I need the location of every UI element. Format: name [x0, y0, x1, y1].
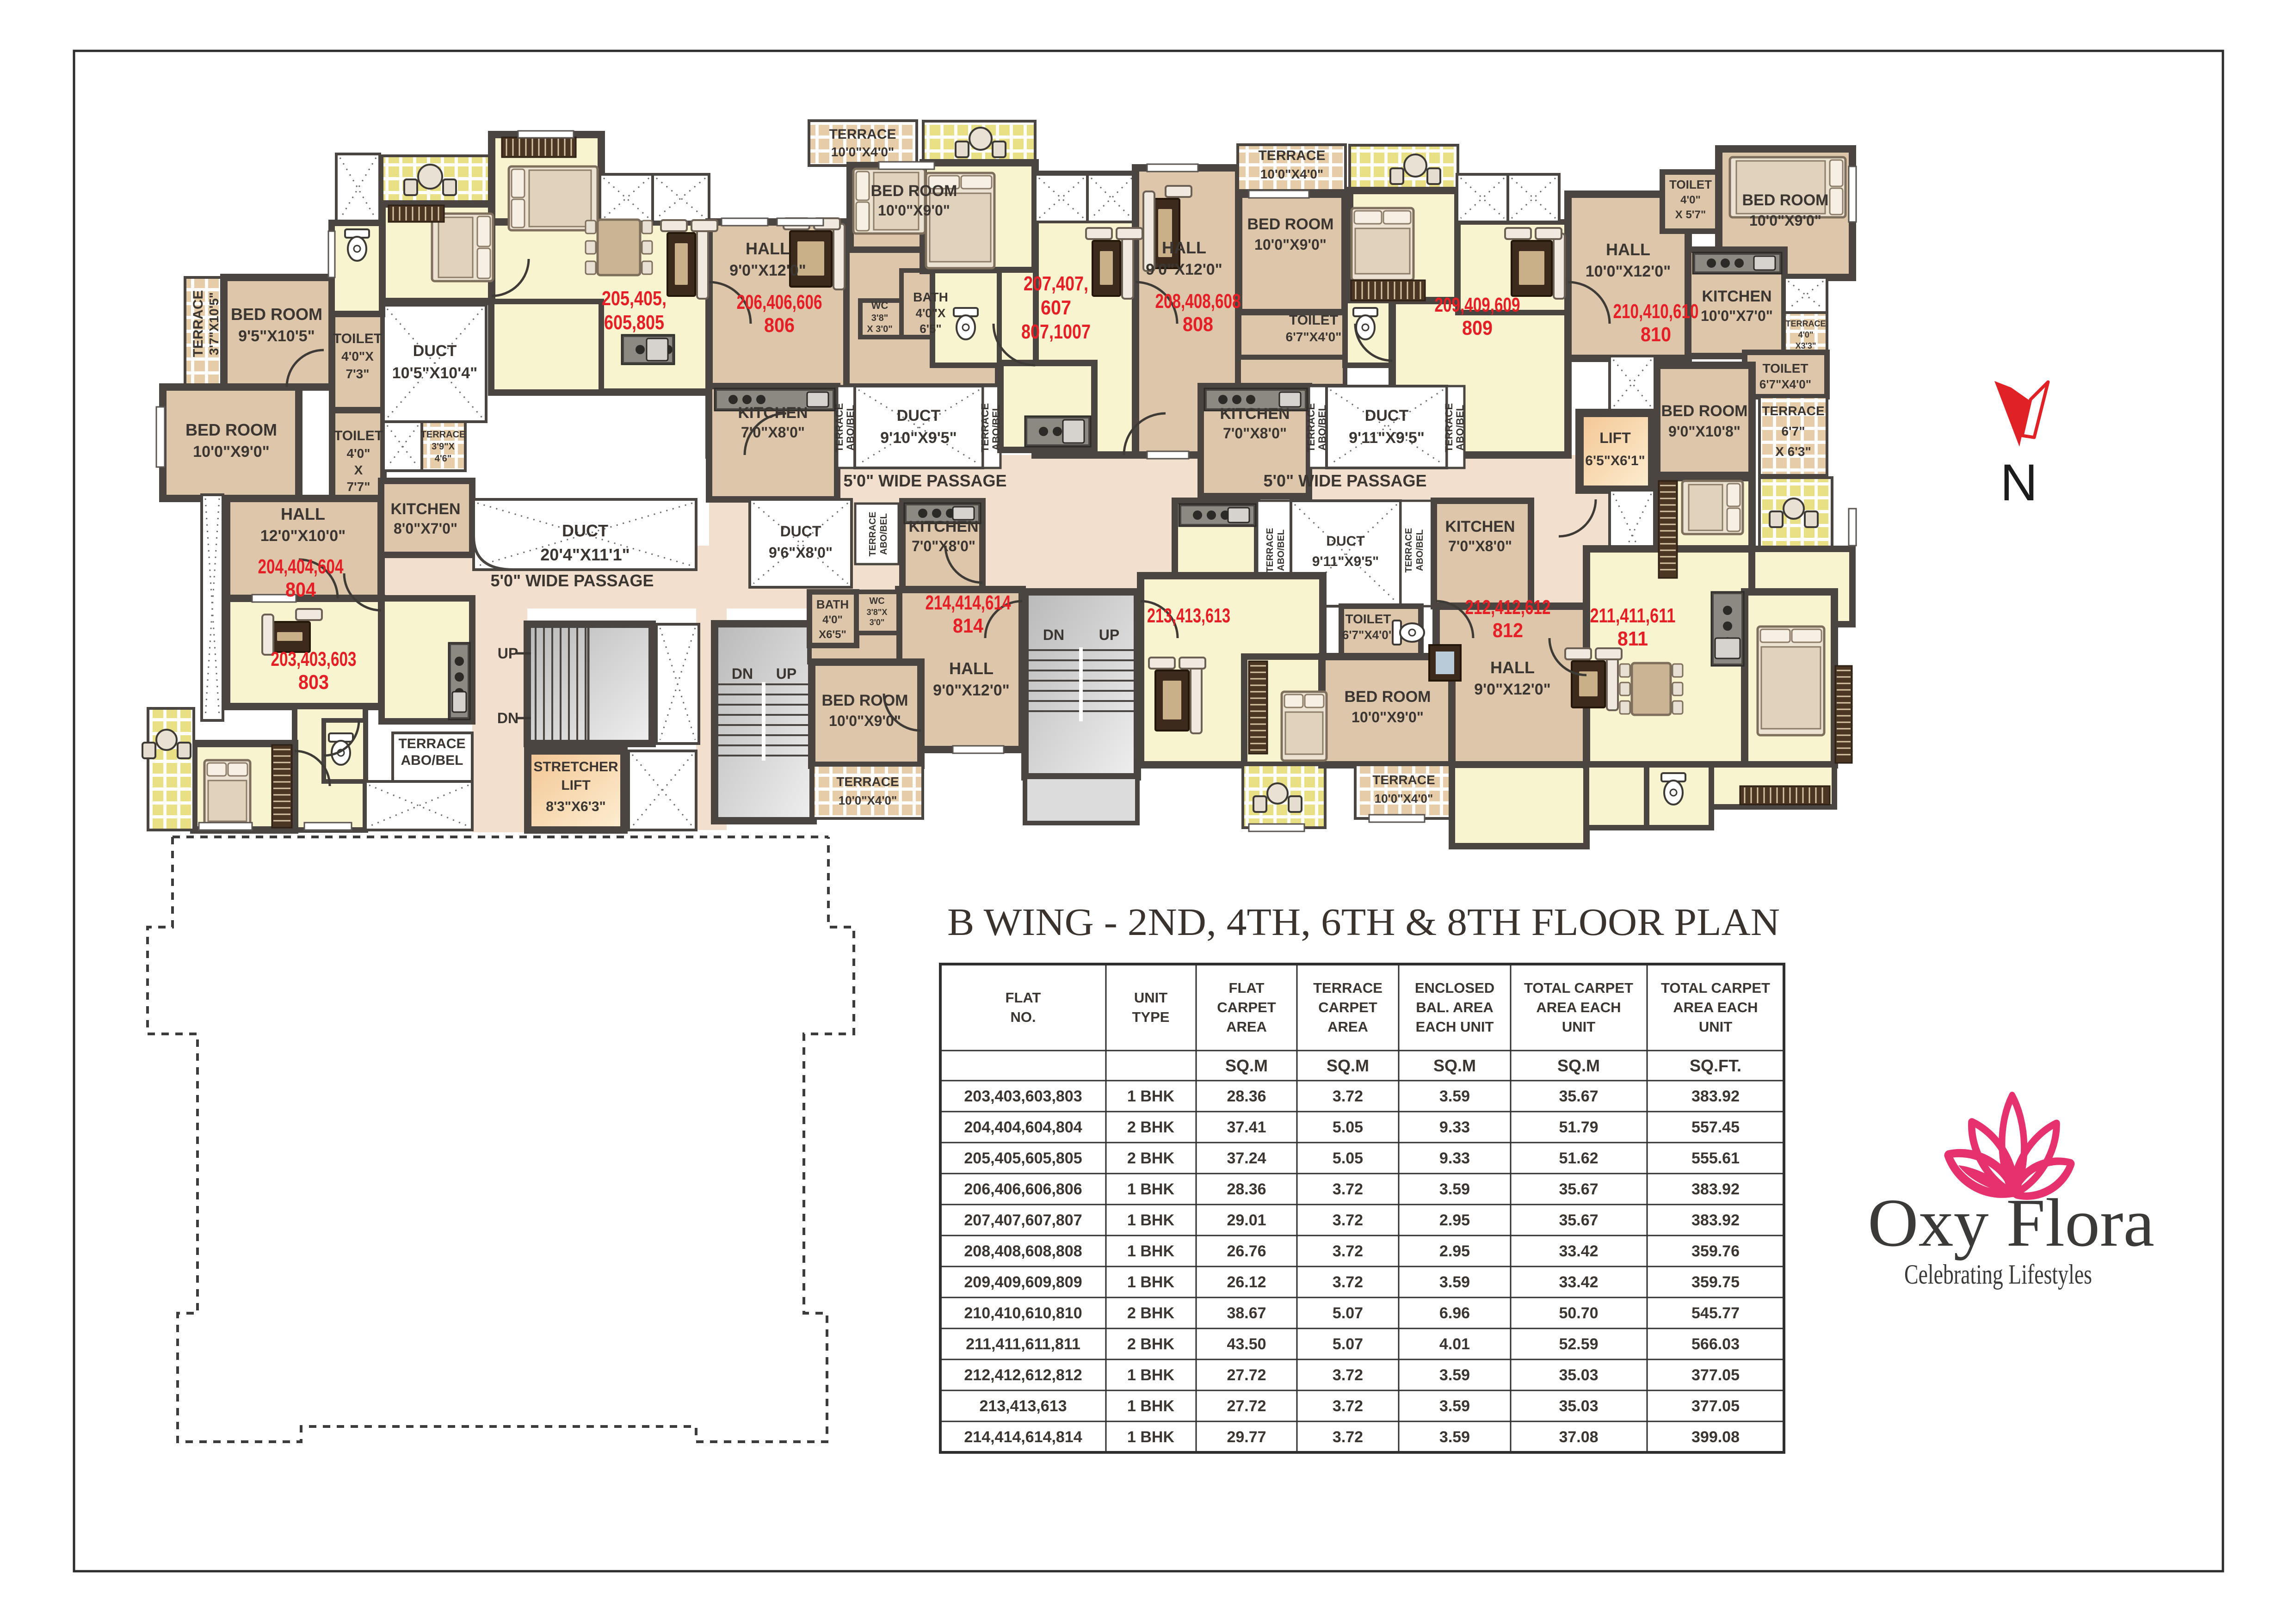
svg-text:1 BHK: 1 BHK: [1127, 1397, 1174, 1415]
svg-text:803: 803: [298, 671, 329, 694]
svg-text:557.45: 557.45: [1691, 1119, 1740, 1136]
svg-text:204,404,604: 204,404,604: [258, 555, 344, 578]
svg-text:TERRACE: TERRACE: [868, 512, 878, 557]
svg-text:213,413,613: 213,413,613: [979, 1397, 1067, 1415]
svg-text:29.01: 29.01: [1227, 1211, 1266, 1229]
svg-text:377.05: 377.05: [1691, 1397, 1740, 1415]
svg-text:3.72: 3.72: [1333, 1242, 1363, 1260]
svg-text:35.03: 35.03: [1559, 1397, 1598, 1415]
svg-text:9'11"X9'5": 9'11"X9'5": [1349, 429, 1425, 447]
svg-text:2.95: 2.95: [1439, 1211, 1470, 1229]
svg-text:KITCHEN: KITCHEN: [1220, 405, 1290, 423]
svg-text:ABO/BEL: ABO/BEL: [990, 405, 1002, 451]
svg-text:TYPE: TYPE: [1132, 1009, 1170, 1025]
svg-text:TOILET: TOILET: [1762, 361, 1808, 375]
svg-text:7'3": 7'3": [346, 367, 369, 381]
svg-text:4'6": 4'6": [435, 454, 451, 464]
svg-text:UP: UP: [498, 645, 518, 662]
svg-text:3.59: 3.59: [1439, 1180, 1470, 1198]
svg-text:5'0" WIDE PASSAGE: 5'0" WIDE PASSAGE: [1263, 471, 1426, 490]
svg-text:10'0"X9'0": 10'0"X9'0": [1254, 236, 1327, 253]
svg-text:6'5": 6'5": [920, 322, 941, 336]
svg-text:BATH: BATH: [913, 290, 948, 304]
svg-text:808: 808: [1183, 313, 1213, 336]
svg-text:4'0"X: 4'0"X: [916, 306, 946, 320]
svg-text:399.08: 399.08: [1691, 1428, 1740, 1446]
svg-text:7'0"X8'0": 7'0"X8'0": [1223, 425, 1287, 442]
svg-text:566.03: 566.03: [1691, 1335, 1740, 1353]
svg-text:810: 810: [1641, 323, 1671, 346]
svg-text:9'0"X12'0": 9'0"X12'0": [1146, 261, 1222, 278]
svg-text:9.33: 9.33: [1439, 1119, 1470, 1136]
svg-text:ABO/BEL: ABO/BEL: [879, 513, 889, 555]
svg-text:AREA: AREA: [1327, 1019, 1368, 1035]
svg-text:50.70: 50.70: [1559, 1304, 1598, 1322]
svg-text:DUCT: DUCT: [780, 523, 821, 540]
svg-text:BATH: BATH: [816, 597, 849, 611]
svg-text:9'6"X8'0": 9'6"X8'0": [769, 544, 833, 561]
svg-text:AREA EACH: AREA EACH: [1673, 999, 1758, 1015]
svg-text:812: 812: [1493, 619, 1523, 642]
svg-text:10'0"X4'0": 10'0"X4'0": [1375, 792, 1433, 805]
svg-text:212,412,612: 212,412,612: [1465, 596, 1551, 619]
svg-text:X 3'0": X 3'0": [867, 324, 892, 334]
svg-text:SQ.M: SQ.M: [1557, 1056, 1600, 1075]
svg-text:TERRACE: TERRACE: [421, 430, 466, 440]
svg-text:ABO/BEL: ABO/BEL: [845, 405, 856, 451]
svg-text:29.77: 29.77: [1227, 1428, 1266, 1446]
svg-text:KITCHEN: KITCHEN: [908, 518, 978, 535]
svg-text:WC: WC: [869, 596, 884, 606]
svg-text:SQ.FT.: SQ.FT.: [1690, 1056, 1741, 1075]
svg-text:10'0"X9'0": 10'0"X9'0": [1749, 212, 1821, 229]
svg-text:TERRACE: TERRACE: [829, 127, 896, 142]
svg-text:359.75: 359.75: [1691, 1273, 1740, 1291]
svg-text:211,411,611,811: 211,411,611,811: [966, 1335, 1080, 1353]
svg-text:TOILET: TOILET: [1669, 178, 1712, 191]
svg-text:X3'3": X3'3": [1796, 341, 1816, 350]
svg-text:6'7"X4'0": 6'7"X4'0": [1286, 330, 1342, 344]
svg-text:UP: UP: [776, 665, 796, 682]
svg-text:ABO/BEL: ABO/BEL: [1316, 405, 1328, 451]
svg-text:3.59: 3.59: [1439, 1088, 1470, 1105]
svg-text:BED ROOM: BED ROOM: [185, 420, 277, 439]
svg-text:9'0"X12'0": 9'0"X12'0": [933, 682, 1010, 699]
svg-text:35.67: 35.67: [1559, 1180, 1598, 1198]
svg-text:807,1007: 807,1007: [1021, 320, 1091, 343]
svg-text:210,410,610: 210,410,610: [1613, 300, 1699, 323]
svg-text:205,405,: 205,405,: [602, 287, 667, 310]
svg-text:TOILET: TOILET: [333, 331, 382, 346]
svg-text:N: N: [2000, 454, 2038, 511]
svg-text:KITCHEN: KITCHEN: [1445, 518, 1515, 535]
svg-text:10'0"X4'0": 10'0"X4'0": [831, 145, 894, 159]
svg-text:37.08: 37.08: [1559, 1428, 1598, 1446]
svg-text:TERRACE: TERRACE: [1785, 319, 1826, 328]
svg-text:209,409,609,809: 209,409,609,809: [964, 1273, 1082, 1291]
svg-text:3.59: 3.59: [1439, 1428, 1470, 1446]
svg-text:20'4"X11'1": 20'4"X11'1": [540, 545, 630, 564]
svg-text:4.01: 4.01: [1439, 1335, 1470, 1353]
svg-text:27.72: 27.72: [1227, 1397, 1266, 1415]
svg-text:KITCHEN: KITCHEN: [738, 404, 808, 422]
svg-text:3.72: 3.72: [1333, 1366, 1363, 1384]
svg-text:2 BHK: 2 BHK: [1127, 1304, 1174, 1322]
svg-text:BED ROOM: BED ROOM: [1742, 191, 1829, 209]
svg-text:5.07: 5.07: [1333, 1335, 1363, 1353]
svg-text:7'7": 7'7": [346, 480, 370, 494]
svg-text:CARPET: CARPET: [1318, 999, 1377, 1015]
svg-text:3.59: 3.59: [1439, 1397, 1470, 1415]
svg-text:UNIT: UNIT: [1134, 990, 1167, 1006]
svg-text:10'0"X9'0": 10'0"X9'0": [829, 713, 901, 729]
svg-text:HALL: HALL: [1606, 240, 1650, 259]
svg-text:BED ROOM: BED ROOM: [822, 692, 908, 709]
svg-text:811: 811: [1617, 627, 1648, 650]
svg-text:3.72: 3.72: [1333, 1180, 1363, 1198]
svg-text:TERRACE: TERRACE: [1305, 403, 1317, 452]
svg-text:TERRACE: TERRACE: [191, 290, 206, 357]
svg-text:8'0"X7'0": 8'0"X7'0": [394, 520, 457, 537]
svg-text:DUCT: DUCT: [413, 342, 457, 360]
svg-text:1 BHK: 1 BHK: [1127, 1366, 1174, 1384]
svg-text:X 5'7": X 5'7": [1675, 209, 1706, 221]
svg-text:51.79: 51.79: [1559, 1119, 1598, 1136]
svg-text:KITCHEN: KITCHEN: [390, 500, 460, 518]
svg-text:4'0": 4'0": [822, 614, 843, 626]
svg-text:ABO/BEL: ABO/BEL: [1454, 405, 1466, 451]
svg-text:10'0"X4'0": 10'0"X4'0": [1260, 167, 1323, 181]
svg-text:208,408,608: 208,408,608: [1155, 290, 1241, 313]
svg-text:212,412,612,812: 212,412,612,812: [964, 1366, 1082, 1384]
svg-text:207,407,: 207,407,: [1024, 272, 1088, 295]
svg-text:TERRACE: TERRACE: [1762, 404, 1824, 418]
svg-text:383.92: 383.92: [1691, 1088, 1740, 1105]
svg-text:3'0": 3'0": [870, 618, 885, 627]
svg-text:3.72: 3.72: [1333, 1428, 1363, 1446]
svg-text:206,406,606: 206,406,606: [737, 291, 822, 314]
svg-text:TOTAL CARPET: TOTAL CARPET: [1661, 980, 1770, 996]
svg-text:AREA EACH: AREA EACH: [1536, 999, 1621, 1015]
svg-text:2 BHK: 2 BHK: [1127, 1119, 1174, 1136]
svg-text:43.50: 43.50: [1227, 1335, 1266, 1353]
svg-text:359.76: 359.76: [1691, 1242, 1740, 1260]
svg-text:5'0" WIDE PASSAGE: 5'0" WIDE PASSAGE: [490, 571, 654, 590]
svg-text:9'0"X12'0": 9'0"X12'0": [1474, 681, 1551, 698]
svg-text:SQ.M: SQ.M: [1327, 1056, 1369, 1075]
svg-text:10'5"X10'4": 10'5"X10'4": [392, 364, 478, 382]
svg-text:1 BHK: 1 BHK: [1127, 1242, 1174, 1260]
svg-text:9'5"X10'5": 9'5"X10'5": [238, 327, 315, 345]
svg-text:213,413,613: 213,413,613: [1147, 604, 1230, 627]
svg-text:AREA: AREA: [1226, 1019, 1267, 1035]
svg-text:4'0": 4'0": [346, 446, 370, 461]
svg-text:555.61: 555.61: [1691, 1150, 1740, 1167]
svg-text:1 BHK: 1 BHK: [1127, 1273, 1174, 1291]
svg-text:3'7"X10'5": 3'7"X10'5": [207, 292, 221, 355]
svg-text:TERRACE: TERRACE: [1265, 528, 1275, 573]
svg-text:377.05: 377.05: [1691, 1366, 1740, 1384]
svg-text:BED ROOM: BED ROOM: [1247, 215, 1334, 233]
svg-text:TERRACE: TERRACE: [979, 403, 991, 452]
svg-text:10'0"X12'0": 10'0"X12'0": [1586, 263, 1671, 280]
svg-text:KITCHEN: KITCHEN: [1702, 288, 1771, 305]
svg-text:DN: DN: [732, 665, 753, 682]
svg-text:WC: WC: [871, 300, 889, 311]
svg-text:3.59: 3.59: [1439, 1366, 1470, 1384]
svg-text:806: 806: [764, 314, 795, 337]
svg-text:28.36: 28.36: [1227, 1088, 1266, 1105]
svg-text:HALL: HALL: [1490, 658, 1535, 677]
svg-text:28.36: 28.36: [1227, 1180, 1266, 1198]
svg-text:38.67: 38.67: [1227, 1304, 1266, 1322]
svg-text:33.42: 33.42: [1559, 1242, 1598, 1260]
svg-text:6'7"X4'0": 6'7"X4'0": [1759, 377, 1811, 391]
svg-text:UNIT: UNIT: [1562, 1019, 1595, 1035]
svg-text:7'0"X8'0": 7'0"X8'0": [741, 424, 805, 441]
svg-text:ABO/BEL: ABO/BEL: [1415, 529, 1425, 571]
svg-text:TERRACE: TERRACE: [1313, 980, 1383, 996]
svg-text:Oxy Flora: Oxy Flora: [1868, 1185, 2154, 1261]
svg-text:37.41: 37.41: [1227, 1119, 1266, 1136]
svg-text:ENCLOSED: ENCLOSED: [1415, 980, 1494, 996]
svg-text:3.72: 3.72: [1333, 1397, 1363, 1415]
svg-text:6'7": 6'7": [1781, 424, 1805, 438]
svg-text:208,408,608,808: 208,408,608,808: [964, 1242, 1082, 1260]
svg-text:3.72: 3.72: [1333, 1088, 1363, 1105]
svg-text:9.33: 9.33: [1439, 1150, 1470, 1167]
svg-text:2 BHK: 2 BHK: [1127, 1335, 1174, 1353]
svg-text:12'0"X10'0": 12'0"X10'0": [260, 527, 346, 545]
svg-text:FLAT: FLAT: [1006, 990, 1041, 1006]
svg-text:607: 607: [1041, 296, 1071, 319]
svg-text:BED ROOM: BED ROOM: [1345, 688, 1431, 706]
svg-text:10'0"X9'0": 10'0"X9'0": [193, 443, 270, 461]
svg-text:HALL: HALL: [949, 659, 994, 678]
svg-text:DUCT: DUCT: [897, 407, 941, 424]
svg-text:804: 804: [285, 578, 316, 601]
svg-text:DUCT: DUCT: [562, 521, 608, 540]
svg-text:3.59: 3.59: [1439, 1273, 1470, 1291]
svg-text:809: 809: [1462, 317, 1493, 339]
svg-text:26.76: 26.76: [1227, 1242, 1266, 1260]
svg-text:1 BHK: 1 BHK: [1127, 1088, 1174, 1105]
svg-text:LIFT: LIFT: [1599, 430, 1631, 446]
svg-text:6'7"X4'0": 6'7"X4'0": [1342, 628, 1394, 642]
svg-text:TOTAL CARPET: TOTAL CARPET: [1524, 980, 1633, 996]
svg-text:TERRACE: TERRACE: [833, 403, 845, 452]
svg-text:204,404,604,804: 204,404,604,804: [964, 1119, 1082, 1136]
svg-text:TERRACE: TERRACE: [1404, 528, 1414, 573]
svg-text:35.67: 35.67: [1559, 1211, 1598, 1229]
svg-text:HALL: HALL: [1162, 238, 1206, 257]
svg-text:TERRACE: TERRACE: [836, 775, 899, 789]
svg-text:FLAT: FLAT: [1229, 980, 1265, 996]
svg-text:3.72: 3.72: [1333, 1273, 1363, 1291]
svg-text:DUCT: DUCT: [1365, 407, 1409, 424]
svg-text:BED ROOM: BED ROOM: [231, 305, 322, 324]
svg-text:3'8": 3'8": [871, 313, 888, 323]
svg-text:206,406,606,806: 206,406,606,806: [964, 1180, 1082, 1198]
svg-text:207,407,607,807: 207,407,607,807: [964, 1211, 1082, 1229]
svg-text:TOILET: TOILET: [334, 428, 383, 443]
svg-text:DN: DN: [497, 710, 518, 726]
svg-text:EACH UNIT: EACH UNIT: [1416, 1019, 1494, 1035]
svg-text:2.95: 2.95: [1439, 1242, 1470, 1260]
svg-text:7'0"X8'0": 7'0"X8'0": [1448, 538, 1512, 554]
svg-text:3'8"X: 3'8"X: [867, 608, 888, 617]
svg-text:37.24: 37.24: [1227, 1150, 1266, 1167]
svg-text:10'0"X4'0": 10'0"X4'0": [839, 793, 897, 807]
svg-text:UP: UP: [1099, 627, 1119, 643]
svg-text:10'0"X7'0": 10'0"X7'0": [1701, 307, 1773, 324]
svg-text:DN: DN: [1043, 627, 1064, 643]
svg-text:TERRACE: TERRACE: [398, 736, 465, 751]
svg-text:HALL: HALL: [281, 504, 325, 523]
svg-text:5.05: 5.05: [1333, 1150, 1363, 1167]
svg-text:26.12: 26.12: [1227, 1273, 1266, 1291]
svg-text:SQ.M: SQ.M: [1433, 1056, 1476, 1075]
svg-text:X 6'3": X 6'3": [1775, 444, 1811, 459]
svg-text:214,414,614,814: 214,414,614,814: [964, 1428, 1082, 1446]
svg-text:27.72: 27.72: [1227, 1366, 1266, 1384]
svg-text:TERRACE: TERRACE: [1258, 148, 1325, 163]
svg-text:205,405,605,805: 205,405,605,805: [964, 1150, 1082, 1167]
svg-text:4'0": 4'0": [1798, 330, 1814, 339]
svg-text:TERRACE: TERRACE: [1372, 773, 1435, 787]
svg-text:Celebrating Lifestyles: Celebrating Lifestyles: [1904, 1259, 2092, 1290]
svg-text:X6'5": X6'5": [819, 628, 846, 641]
svg-text:52.59: 52.59: [1559, 1335, 1598, 1353]
svg-text:STRETCHER: STRETCHER: [533, 759, 618, 775]
svg-text:5.05: 5.05: [1333, 1119, 1363, 1136]
svg-text:210,410,610,810: 210,410,610,810: [964, 1304, 1082, 1322]
svg-text:CARPET: CARPET: [1217, 999, 1276, 1015]
svg-text:4'0"X: 4'0"X: [341, 349, 374, 363]
svg-text:35.67: 35.67: [1559, 1088, 1598, 1105]
svg-text:9'0"X12'0": 9'0"X12'0": [729, 262, 806, 279]
svg-text:9'11"X9'5": 9'11"X9'5": [1312, 554, 1379, 569]
svg-text:1 BHK: 1 BHK: [1127, 1180, 1174, 1198]
svg-text:2 BHK: 2 BHK: [1127, 1150, 1174, 1167]
svg-text:3'9"X: 3'9"X: [432, 442, 455, 452]
svg-text:DUCT: DUCT: [1326, 534, 1364, 549]
svg-text:BAL. AREA: BAL. AREA: [1416, 999, 1494, 1015]
svg-text:383.92: 383.92: [1691, 1211, 1740, 1229]
svg-text:1 BHK: 1 BHK: [1127, 1211, 1174, 1229]
svg-text:51.62: 51.62: [1559, 1150, 1598, 1167]
svg-text:NO.: NO.: [1010, 1009, 1036, 1025]
svg-text:545.77: 545.77: [1691, 1304, 1740, 1322]
svg-text:ABO/BEL: ABO/BEL: [401, 753, 463, 768]
svg-text:209,409,609: 209,409,609: [1435, 294, 1520, 316]
svg-text:35.03: 35.03: [1559, 1366, 1598, 1384]
svg-text:LIFT: LIFT: [561, 778, 590, 793]
svg-text:B WING - 2ND, 4TH, 6TH & 8TH F: B WING - 2ND, 4TH, 6TH & 8TH FLOOR PLAN: [947, 901, 1780, 944]
svg-text:UNIT: UNIT: [1699, 1019, 1732, 1035]
svg-text:1 BHK: 1 BHK: [1127, 1428, 1174, 1446]
svg-text:33.42: 33.42: [1559, 1273, 1598, 1291]
svg-text:9'10"X9'5": 9'10"X9'5": [880, 429, 957, 447]
svg-text:814: 814: [953, 615, 983, 637]
svg-text:211,411,611: 211,411,611: [1590, 604, 1676, 627]
svg-text:383.92: 383.92: [1691, 1180, 1740, 1198]
svg-text:TERRACE: TERRACE: [1443, 403, 1455, 452]
svg-text:6'5"X6'1": 6'5"X6'1": [1585, 453, 1645, 468]
svg-text:X: X: [354, 463, 363, 477]
svg-text:10'0"X9'0": 10'0"X9'0": [878, 202, 950, 219]
svg-text:605,805: 605,805: [604, 311, 664, 334]
svg-text:TOILET: TOILET: [1289, 313, 1338, 328]
svg-text:3.72: 3.72: [1333, 1211, 1363, 1229]
svg-text:8'3"X6'3": 8'3"X6'3": [546, 799, 605, 814]
svg-text:BED ROOM: BED ROOM: [871, 182, 957, 200]
svg-text:6.96: 6.96: [1439, 1304, 1470, 1322]
svg-text:TOILET: TOILET: [1345, 612, 1391, 626]
svg-text:ABO/BEL: ABO/BEL: [1276, 529, 1286, 571]
svg-text:7'0"X8'0": 7'0"X8'0": [912, 538, 975, 554]
svg-text:BED ROOM: BED ROOM: [1661, 402, 1748, 420]
svg-text:5.07: 5.07: [1333, 1304, 1363, 1322]
svg-text:214,414,614: 214,414,614: [926, 591, 1011, 614]
svg-text:HALL: HALL: [746, 239, 790, 258]
svg-text:10'0"X9'0": 10'0"X9'0": [1352, 709, 1424, 725]
svg-text:5'0" WIDE PASSAGE: 5'0" WIDE PASSAGE: [843, 471, 1006, 490]
svg-text:203,403,603: 203,403,603: [271, 648, 357, 670]
svg-text:9'0"X10'8": 9'0"X10'8": [1668, 423, 1741, 440]
svg-text:4'0": 4'0": [1680, 194, 1701, 206]
svg-text:203,403,603,803: 203,403,603,803: [964, 1088, 1082, 1105]
svg-text:SQ.M: SQ.M: [1225, 1056, 1268, 1075]
